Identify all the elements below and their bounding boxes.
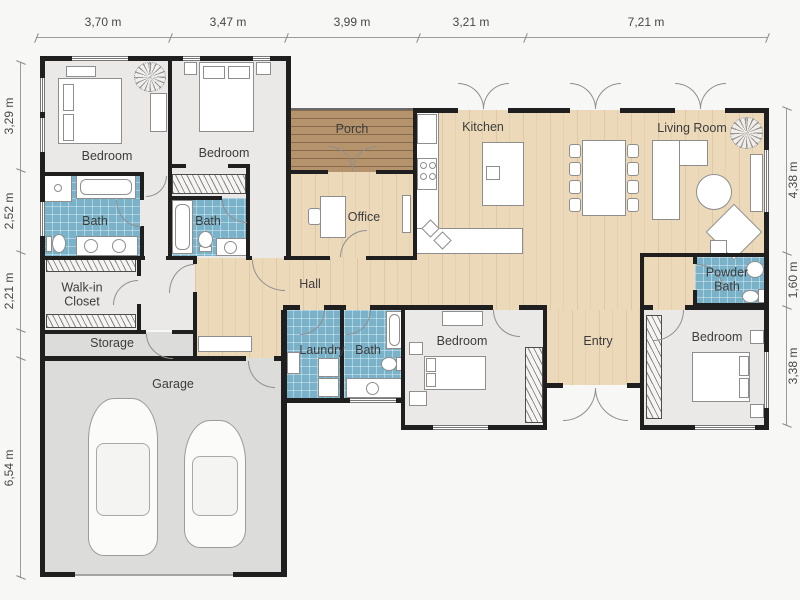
- shower-drain-icon: [54, 184, 62, 192]
- nightstand: [750, 330, 764, 344]
- label-bedroom3: Bedroom: [437, 334, 488, 348]
- nightstand: [256, 62, 271, 75]
- door-arc: [483, 83, 509, 109]
- window: [40, 202, 45, 236]
- dim-tick: [523, 33, 528, 43]
- wall: [193, 256, 197, 264]
- wall: [168, 164, 186, 168]
- dining-table: [582, 140, 626, 216]
- label-bath2: Bath: [195, 214, 221, 228]
- wall: [281, 398, 350, 403]
- label-bedroom1: Bedroom: [82, 149, 133, 163]
- wall: [137, 256, 141, 276]
- wall: [40, 330, 146, 334]
- wall: [140, 226, 144, 256]
- label-living-room: Living Room: [657, 121, 726, 135]
- bathtub-inner: [175, 204, 190, 250]
- pillow: [426, 373, 436, 387]
- bathtub-inner: [80, 179, 132, 195]
- wall: [725, 108, 769, 113]
- wall: [488, 425, 547, 430]
- wall: [366, 256, 417, 260]
- wall: [193, 292, 197, 358]
- wall: [640, 253, 644, 430]
- dim-top-4: 3,21 m: [453, 15, 490, 29]
- dimension-line-left: [20, 62, 21, 578]
- dim-tick: [16, 328, 26, 333]
- wall: [545, 383, 563, 388]
- chair: [569, 198, 581, 212]
- dim-left-3: 2,21 m: [2, 273, 16, 310]
- wall: [396, 398, 405, 403]
- wall: [274, 356, 287, 361]
- door-arc: [570, 83, 596, 109]
- sink: [84, 239, 98, 253]
- dim-tick: [16, 60, 26, 65]
- island-sink: [486, 166, 500, 180]
- wall: [233, 572, 286, 577]
- window: [253, 56, 270, 61]
- window: [695, 425, 755, 430]
- wall: [168, 56, 172, 258]
- floor-plan: Bedroom Bedroom Bath Bath Walk-in Closet…: [0, 0, 800, 600]
- coffee-table: [696, 174, 732, 210]
- dim-top-2: 3,47 m: [210, 15, 247, 29]
- wall: [413, 108, 458, 113]
- chair: [627, 144, 639, 158]
- porch-edge-line: [291, 108, 413, 110]
- window: [433, 425, 488, 430]
- chair: [569, 162, 581, 176]
- burner-icon: [420, 162, 427, 169]
- toilet-bowl: [381, 357, 397, 371]
- wall: [40, 56, 45, 78]
- wall: [543, 305, 547, 430]
- label-bedroom2: Bedroom: [199, 146, 250, 160]
- door-arc: [563, 388, 596, 421]
- dim-left-4: 6,54 m: [2, 450, 16, 487]
- car-cabin: [96, 443, 149, 517]
- dresser: [442, 311, 483, 326]
- dim-tick: [16, 356, 26, 361]
- chair: [627, 180, 639, 194]
- wall: [764, 108, 769, 150]
- dim-left-1: 3,29 m: [2, 98, 16, 135]
- floor-porch: [291, 110, 413, 172]
- desk: [320, 196, 346, 238]
- label-bedroom4: Bedroom: [692, 330, 743, 344]
- closet-rod: [525, 347, 543, 423]
- tv-console: [750, 154, 763, 212]
- sofa: [652, 140, 680, 220]
- toilet-bowl: [52, 234, 66, 253]
- dim-left-2: 2,52 m: [2, 193, 16, 230]
- burner-icon: [420, 173, 427, 180]
- wall: [627, 383, 642, 388]
- dim-tick: [34, 33, 39, 43]
- pillow: [739, 356, 749, 376]
- fridge: [417, 114, 437, 144]
- wall: [286, 170, 328, 174]
- dim-right-1: 4,38 m: [786, 162, 800, 199]
- burner-icon: [429, 173, 436, 180]
- wall: [370, 305, 493, 310]
- nightstand: [409, 342, 423, 355]
- wall: [642, 425, 695, 430]
- dim-tick: [16, 575, 26, 580]
- door-arc: [458, 83, 484, 109]
- dim-tick: [16, 250, 26, 255]
- window: [72, 56, 128, 61]
- wall: [764, 212, 769, 352]
- sink: [224, 241, 237, 254]
- burner-icon: [429, 162, 436, 169]
- car: [184, 420, 246, 548]
- wall: [140, 172, 144, 200]
- wall: [401, 305, 405, 430]
- chair: [569, 180, 581, 194]
- washer: [318, 358, 339, 377]
- closet-rod: [172, 174, 246, 194]
- wall: [40, 152, 45, 202]
- door-arc: [595, 83, 621, 109]
- window: [40, 78, 45, 112]
- door-arc: [595, 388, 628, 421]
- wall: [40, 572, 75, 577]
- window: [350, 398, 396, 403]
- label-storage: Storage: [90, 336, 134, 350]
- door-arc: [700, 83, 726, 109]
- dim-right-3: 3,38 m: [786, 348, 800, 385]
- pillow: [63, 84, 74, 111]
- wall: [640, 253, 769, 257]
- wall: [281, 310, 287, 577]
- wall: [40, 356, 246, 361]
- wall: [286, 256, 330, 260]
- closet-rod: [46, 258, 136, 272]
- console-table: [198, 336, 252, 352]
- car: [88, 398, 158, 556]
- chair: [627, 162, 639, 176]
- wall: [693, 253, 697, 264]
- dim-tick: [16, 168, 26, 173]
- label-laundry: Laundry: [299, 343, 344, 357]
- wall: [286, 56, 291, 260]
- window: [183, 56, 200, 61]
- wall: [403, 425, 433, 430]
- wall: [137, 304, 141, 334]
- dim-tick: [416, 33, 421, 43]
- chair: [569, 144, 581, 158]
- label-bath3: Bath: [355, 343, 381, 357]
- wall: [620, 108, 675, 113]
- dim-tick: [782, 305, 792, 310]
- wall: [40, 256, 145, 260]
- label-kitchen: Kitchen: [462, 120, 504, 134]
- dim-tick: [284, 33, 289, 43]
- dim-top-5: 7,21 m: [628, 15, 665, 29]
- pillow: [739, 378, 749, 398]
- dim-tick: [782, 106, 792, 111]
- closet-rod: [46, 314, 136, 328]
- car-cabin: [192, 456, 239, 516]
- wall: [40, 236, 45, 577]
- pillow: [228, 66, 250, 79]
- wall: [413, 108, 417, 260]
- door-arc: [675, 83, 701, 109]
- nightstand: [409, 391, 427, 406]
- label-office: Office: [348, 210, 380, 224]
- label-walkin-closet: Walk-in Closet: [50, 281, 114, 310]
- plant-icon: [134, 62, 166, 92]
- dim-tick: [168, 33, 173, 43]
- sink: [112, 239, 126, 253]
- wall: [200, 56, 253, 61]
- wall: [508, 108, 570, 113]
- label-bath1: Bath: [82, 214, 108, 228]
- wall: [168, 196, 222, 200]
- wall: [376, 170, 417, 174]
- dim-tick: [782, 423, 792, 428]
- wall: [685, 305, 769, 310]
- label-entry: Entry: [583, 334, 612, 348]
- dim-right-2: 1,60 m: [786, 262, 800, 299]
- pillow: [203, 66, 225, 79]
- label-powder-bath: Powder Bath: [700, 266, 754, 295]
- toilet-bowl: [198, 231, 213, 248]
- cabinet: [402, 195, 411, 233]
- label-hall: Hall: [299, 277, 321, 291]
- wall: [755, 425, 769, 430]
- plant-icon: [730, 117, 763, 149]
- nightstand: [184, 62, 197, 75]
- garage-door-line: [75, 574, 233, 576]
- office-chair: [308, 208, 321, 225]
- window: [764, 150, 769, 212]
- dryer: [318, 378, 339, 397]
- pillow: [63, 114, 74, 141]
- dim-top-3: 3,99 m: [334, 15, 371, 29]
- dim-tick: [765, 33, 770, 43]
- window: [764, 352, 769, 408]
- dim-tick: [782, 251, 792, 256]
- sink: [366, 382, 379, 395]
- dresser: [150, 93, 167, 132]
- laundry-sink: [287, 352, 300, 374]
- nightstand: [66, 66, 96, 77]
- pillow: [426, 358, 436, 372]
- chair: [627, 198, 639, 212]
- dim-top-1: 3,70 m: [85, 15, 122, 29]
- wall: [283, 305, 300, 310]
- dimension-line-top: [36, 37, 767, 38]
- bathtub-inner: [389, 314, 400, 346]
- wall: [40, 172, 140, 176]
- label-porch: Porch: [336, 122, 369, 136]
- label-garage: Garage: [152, 377, 194, 391]
- wall: [128, 56, 183, 61]
- nightstand: [750, 404, 764, 418]
- window: [40, 118, 45, 152]
